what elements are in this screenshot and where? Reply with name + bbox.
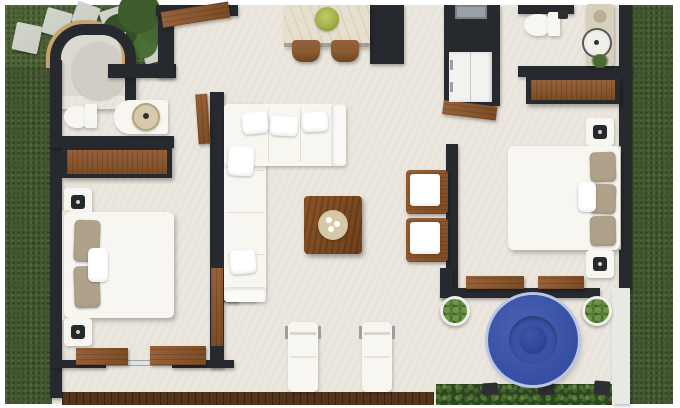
table-lamp [71,195,85,209]
lounger-frame [359,326,362,339]
patio-wall-east [612,288,630,404]
wall-bench [466,276,524,289]
sofa-pillow [241,111,269,136]
lounger-seam [290,356,316,358]
table-lamp [593,257,607,271]
grass-right [628,5,673,404]
plant-foliage [585,299,609,323]
vanity-plant [590,54,610,68]
wall-west [50,60,62,398]
sofa-armrest [224,287,266,302]
fridge-handle [450,82,453,92]
lounger-frame [318,326,321,339]
bed-cushion [578,182,596,212]
hedge-planter [593,380,610,395]
bar-stool [331,40,359,62]
bar-stool [292,40,320,62]
fruit-bowl [315,7,339,31]
toilet-tank [85,104,97,128]
wall-bench [538,276,584,289]
sofa-seam [268,108,269,162]
lounger-frame [285,326,288,339]
hedge-planter [538,383,554,395]
pool-center [519,326,547,354]
lounger-headrest [364,332,390,335]
tray-decor [334,221,340,227]
basin-drain [143,113,149,119]
table-lamp [593,125,607,139]
basin-drain [594,40,599,45]
wardrobe2-wood [531,80,615,100]
hedge [436,384,612,405]
divider-wood-console [211,268,223,346]
lounger-seam [364,356,390,358]
wood-deck [62,392,434,405]
tray-decor [328,226,334,232]
armchair-cushion [410,222,440,254]
sofa-armrest [331,104,346,166]
sofa-pillow [301,111,328,132]
fridge-handle [450,60,453,70]
wall-desk [150,346,206,365]
sofa-seam [227,212,264,213]
bed-pillow [589,152,616,183]
wardrobe1-wood [67,150,167,174]
table-lamp [71,325,85,339]
potted-plant [582,296,612,326]
armchair-cushion [410,174,440,206]
flush-plate [558,10,568,19]
floor-plan-render [0,0,680,408]
sofa-pillow [229,249,257,275]
fridge-door-seam [470,52,471,102]
bed-pillow [590,216,617,246]
plant-foliage [443,299,467,323]
lounger-headrest [290,332,316,335]
sofa-pillow [227,145,255,176]
hedge-planter [482,382,499,395]
lounger-frame [392,326,395,339]
sofa-pillow [269,115,298,137]
table-tray [318,210,348,240]
kitchen-sink [455,5,487,19]
tray-decor [326,217,332,223]
potted-plant [440,296,470,326]
bed-cushion [88,248,108,282]
pantry-unit [370,5,404,64]
wall-desk [76,348,128,365]
toilet-bowl [524,14,550,36]
